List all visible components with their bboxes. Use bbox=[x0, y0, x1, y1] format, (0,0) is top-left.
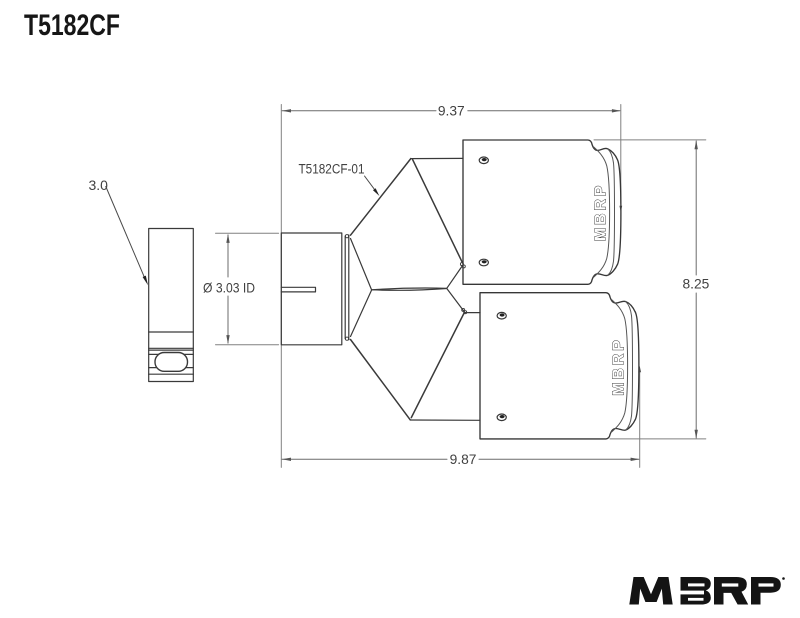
svg-text:MBRP: MBRP bbox=[593, 183, 610, 241]
svg-text:3.0: 3.0 bbox=[89, 177, 109, 193]
svg-text:Ø 3.03 ID: Ø 3.03 ID bbox=[203, 280, 255, 295]
svg-text:T5182CF-01: T5182CF-01 bbox=[299, 162, 365, 177]
svg-text:T5182CF: T5182CF bbox=[24, 9, 120, 42]
svg-text:MBRP: MBRP bbox=[611, 337, 628, 395]
svg-text:9.37: 9.37 bbox=[438, 103, 465, 118]
svg-text:9.87: 9.87 bbox=[450, 452, 477, 467]
svg-text:8.25: 8.25 bbox=[682, 276, 709, 291]
